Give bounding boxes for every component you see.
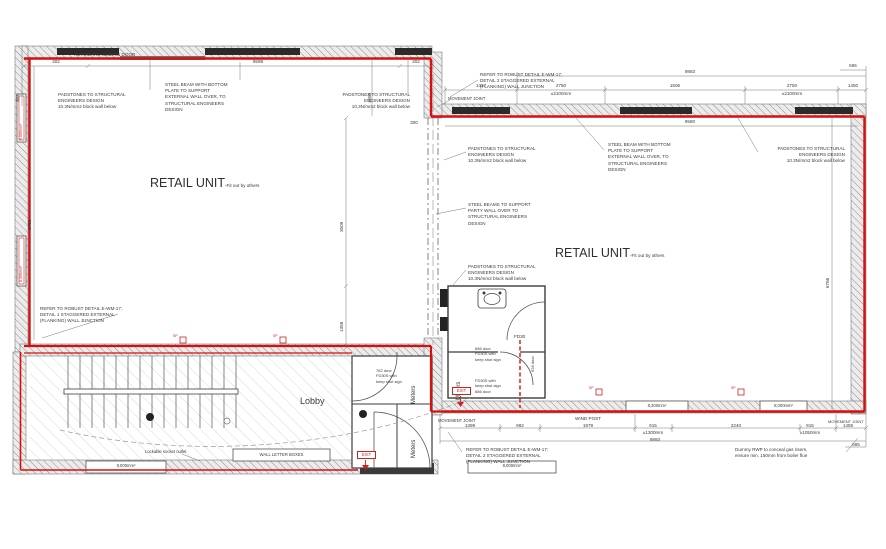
room-meters-1-label: Meters [411,386,417,404]
retail-unit-2-suffix: -Fit out by others [630,253,664,258]
socket-tag-2: SP [273,335,278,338]
dim-6766: 6766 [826,278,831,288]
note-auto-sliding-door: AUTOMATIC SLIDING DOOR [74,52,135,58]
dim-665-a: 665 [833,64,873,69]
room-meters-2-label: Meters [411,440,417,458]
room-retail-unit-1: RETAIL UNIT-Fit out by others [150,176,259,190]
dim-2750-b: 2750 [772,84,812,89]
dim-302-v: 302 [16,94,21,102]
dim-1399: 1399 [450,424,490,429]
note-dummy-rwp: Dummy RWP to conceal gas risers, ensure … [735,447,807,459]
dim-pm2100-b: ±2100mm [772,92,812,97]
dim-1358: 1358 [340,322,345,332]
dim-9598: 9598 [238,60,278,65]
vent-label-1: 8,000mm² [86,464,166,468]
dim-9883: 9883 [670,70,710,75]
exit-sign-2: EXIT [357,451,376,459]
sink-icon [478,289,506,308]
dim-915-a: 915 [633,424,673,429]
dim-1459: 1459 [828,424,868,429]
dim-6768: 6768 [28,220,33,230]
retail-unit-1-suffix: -Fit out by others [225,183,259,188]
dim-1450: 1450 [833,84,873,89]
dim-665-b: 665 [836,443,876,448]
dim-1586: 1586 [368,93,373,103]
dim-992: 992 [500,424,540,429]
dim-1427: 1427 [461,84,501,89]
note-steel-beams-party: STEEL BEAMS TO SUPPORT PARTY WALL OVER T… [468,202,531,227]
dim-pm1300: ±1300mm [633,431,673,436]
note-door-686-b: FD30S with keep shut sign 686 door [475,378,501,394]
socket-tag-1: SP [173,335,178,338]
vent-label-4: 8,000mm² [760,404,807,408]
dim-9580: 9580 [670,120,710,125]
socket-tag-3: SP [589,387,594,390]
dim-9893: 9893 [635,438,675,443]
dim-3509: 3509 [340,222,345,232]
dim-1506: 1506 [655,84,695,89]
note-steel-beam-1: STEEL BEAM WITH BOTTOM PLATE TO SUPPORT … [165,82,228,113]
room-lobby-label: Lobby [300,396,325,406]
note-steel-beam-2: STEEL BEAM WITH BOTTOM PLATE TO SUPPORT … [608,142,671,173]
note-movement-joint-top: MOVEMENT JOINT [448,97,485,101]
note-wall-letter-boxes: WALL LETTER BOXES [233,453,330,457]
dim-302-b: 302 [396,60,436,65]
note-robust-detail-1: REFER TO ROBUST DETAIL E-WM-17; DETAIL 1… [40,306,122,325]
dim-pm2100-a: ±2100mm [541,92,581,97]
note-door-762: 762 door FD30S with keep shut sign [376,368,402,384]
dim-1979: 1979 [568,424,608,429]
dim-pm1050: ±1050mm [790,431,830,436]
note-lockable-socket: Lockable socket outlet [145,450,186,454]
retail-unit-1-label: RETAIL UNIT [150,176,225,190]
room-retail-unit-2: RETAIL UNIT-Fit out by others [555,246,664,260]
lobby-floor-hatch [30,356,352,460]
vent-label-left-2: 8,000mm² [20,266,24,282]
note-door-628: 628 door [531,356,535,372]
retail-unit-2-label: RETAIL UNIT [555,246,630,260]
vent-label-3: 8,300mm² [626,404,688,408]
dim-2750-a: 2750 [541,84,581,89]
note-padstones-3: PADSTONES TO STRUCTURAL ENGINEERS DESIGN… [468,146,536,165]
exit-sign-1: EXIT [452,387,471,395]
socket-tag-4: SP [731,387,736,390]
note-padstones-4: PADSTONES TO STRUCTURAL ENGINEERS DESIGN… [757,146,845,165]
floor-plan-drawing: AUTOMATIC SLIDING DOOR PADSTONES TO STRU… [0,0,886,549]
room-wc-fd30-label: FD30 [514,335,525,340]
note-wind-post: WIND POST [568,417,608,422]
note-padstones-1: PADSTONES TO STRUCTURAL ENGINEERS DESIGN… [58,92,126,111]
dim-2240: 2240 [716,424,756,429]
vent-label-left-1: 8,000mm² [20,124,24,140]
note-door-686-a: 686 door FD30S with keep shut sign [475,346,501,362]
vent-label-2: 8,000mm² [468,464,556,468]
note-padstones-5: PADSTONES TO STRUCTURAL ENGINEERS DESIGN… [468,264,536,283]
dim-302-a: 302 [36,60,76,65]
dim-915-b: 915 [790,424,830,429]
dim-300: 300 [394,121,434,126]
